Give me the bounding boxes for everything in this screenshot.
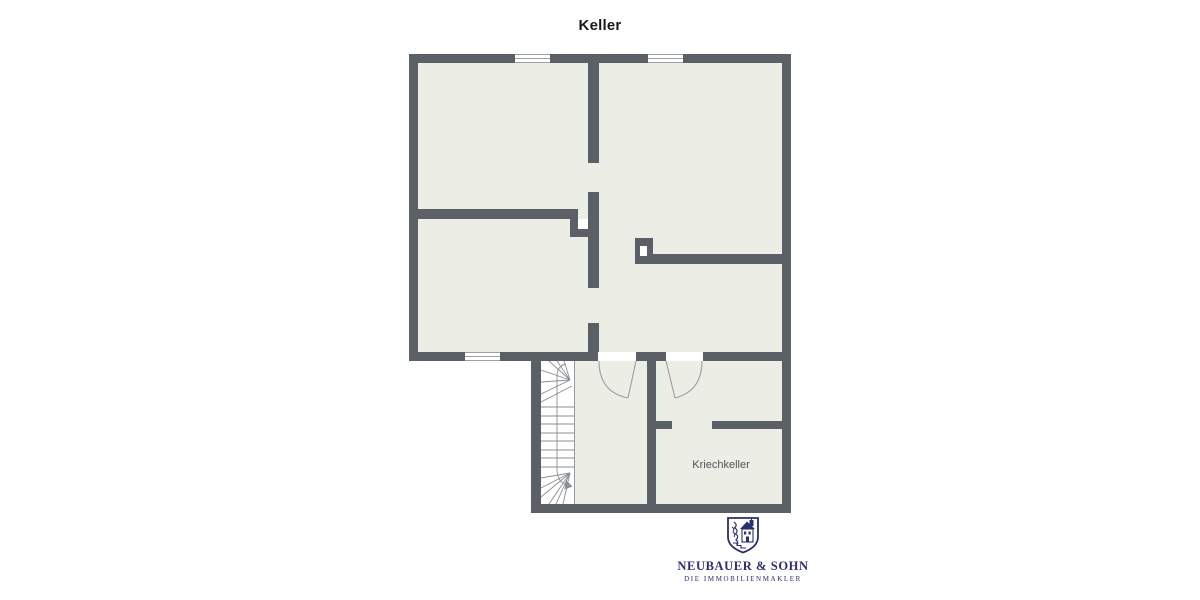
floorplan-canvas: Keller bbox=[0, 0, 1200, 600]
company-crest-icon bbox=[725, 516, 761, 556]
door-swing-arc bbox=[599, 361, 628, 398]
door-swing-arc bbox=[675, 361, 702, 398]
door-leaf bbox=[628, 361, 636, 398]
company-name: NEUBAUER & SOHN bbox=[643, 559, 843, 574]
company-logo: NEUBAUER & SOHN DIE IMMOBILIENMAKLER bbox=[643, 516, 843, 583]
door-swings bbox=[0, 0, 1200, 600]
door-leaf bbox=[666, 361, 675, 398]
room-label-kriechkeller: Kriechkeller bbox=[692, 459, 749, 471]
company-tagline: DIE IMMOBILIENMAKLER bbox=[643, 575, 843, 583]
